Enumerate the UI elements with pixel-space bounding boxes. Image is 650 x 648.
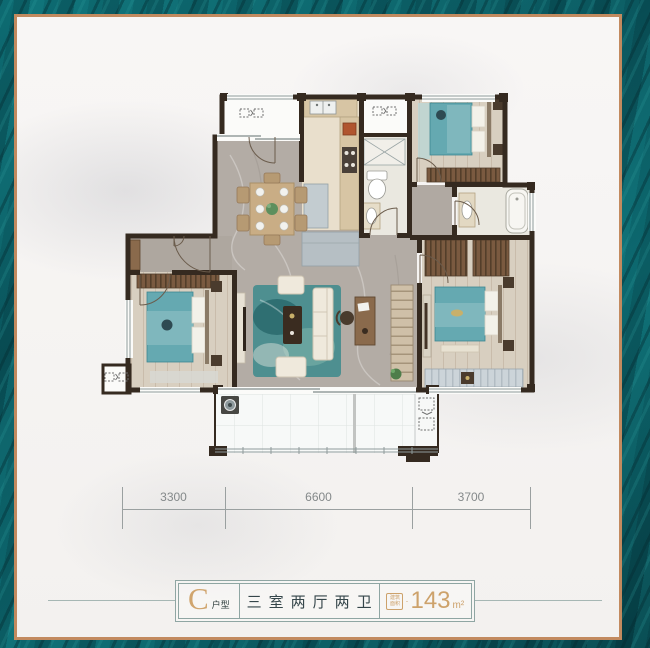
connector-line-left — [48, 600, 175, 601]
coffee-table — [283, 306, 302, 344]
tv-console-master — [423, 295, 431, 357]
dimension-tick — [530, 487, 531, 529]
shower — [364, 139, 405, 165]
desk — [355, 297, 375, 345]
kitchen-island — [302, 232, 359, 266]
area-badge-bottom: 面积 — [387, 601, 402, 608]
area-separator: · — [405, 596, 408, 606]
nightstand — [503, 277, 514, 288]
room-hall-right — [412, 185, 452, 238]
toilet — [367, 171, 387, 199]
stove — [342, 147, 357, 173]
room-foyer — [130, 236, 232, 272]
bookshelf — [391, 285, 413, 381]
area-unit: m² — [453, 592, 465, 611]
wardrobe-bedroom-1 — [137, 274, 219, 288]
type-letter: C — [188, 584, 209, 614]
dimension-label: 3700 — [412, 490, 530, 504]
dimension-line — [122, 509, 531, 510]
tv-console-living — [236, 293, 246, 363]
wardrobe-master — [425, 240, 467, 276]
fridge — [304, 184, 328, 228]
wardrobe-master — [473, 240, 509, 276]
rooms-label: 三室两厅两卫 — [240, 591, 379, 612]
washing-machine — [221, 396, 239, 414]
nightstand — [211, 355, 222, 366]
master-bath-sink — [459, 193, 475, 227]
dining-table — [250, 183, 294, 235]
floor-plan-svg — [95, 85, 555, 470]
plant — [391, 369, 402, 380]
bedroom1-mat — [150, 371, 218, 383]
area-value: 143 — [410, 589, 450, 613]
page-background: 3300 6600 3700 C 户型 三室两厅两卫 建筑 面积 · 143 m… — [0, 0, 650, 648]
bedroom2-rug — [418, 103, 430, 159]
title-plate: C 户型 三室两厅两卫 建筑 面积 · 143 m² — [175, 580, 475, 622]
bathtub — [506, 189, 528, 233]
kitchen-kettle — [343, 123, 356, 135]
shoe-cabinet — [130, 240, 140, 270]
rooms-section: 三室两厅两卫 — [239, 584, 380, 618]
dimension-label: 6600 — [225, 490, 412, 504]
type-section: C 户型 — [179, 584, 239, 618]
bed-bedroom-1 — [147, 290, 209, 364]
area-section: 建筑 面积 · 143 m² — [380, 584, 471, 618]
title-plate-inner: C 户型 三室两厅两卫 建筑 面积 · 143 m² — [178, 583, 472, 619]
type-suffix: 户型 — [212, 598, 230, 614]
kitchen-sink — [310, 101, 336, 114]
dimension-label: 3300 — [122, 490, 225, 504]
window-bench — [425, 369, 523, 387]
room-balcony-bottom — [215, 390, 438, 453]
nightstand — [211, 281, 222, 292]
nightstand — [503, 340, 514, 351]
armchair — [278, 276, 304, 294]
nightstand — [493, 144, 504, 155]
connector-line-right — [475, 600, 602, 601]
sofa — [313, 288, 333, 360]
armchair — [276, 357, 306, 377]
area-badge: 建筑 面积 — [386, 593, 403, 610]
